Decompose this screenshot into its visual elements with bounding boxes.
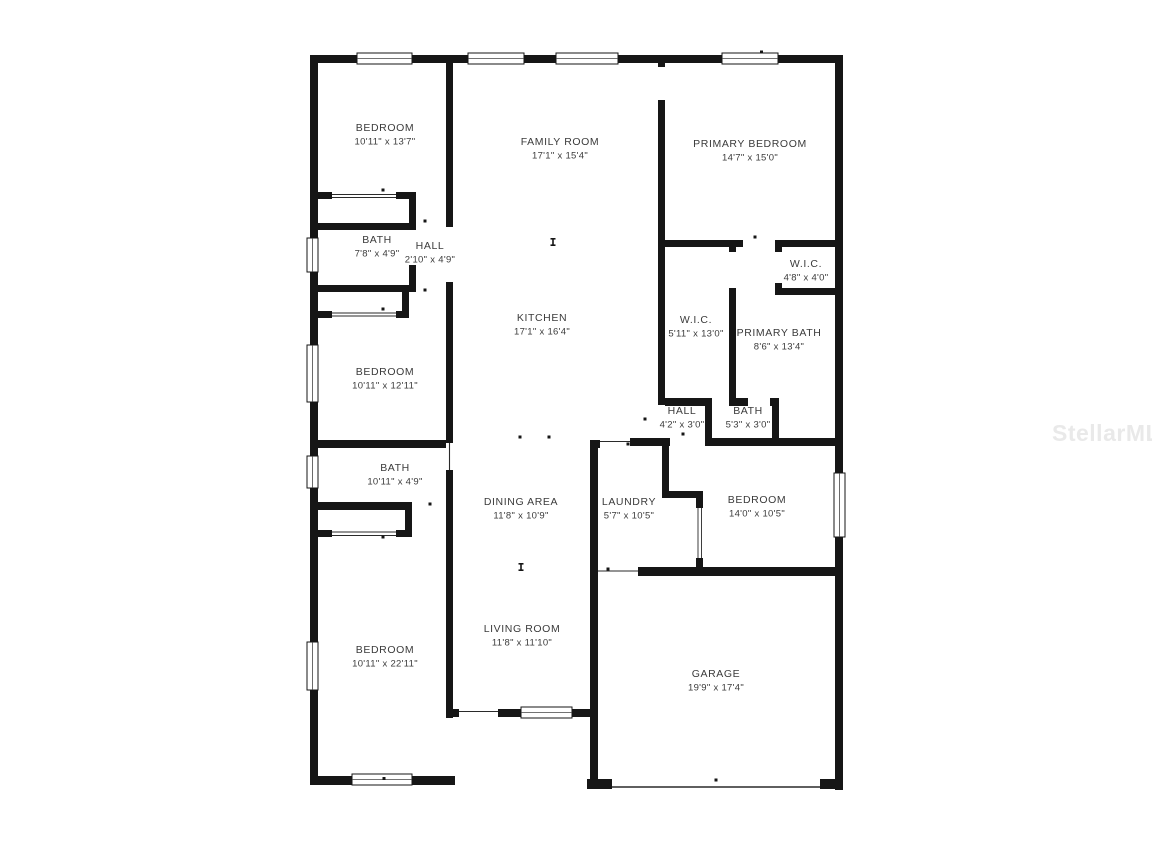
room-name: BEDROOM: [356, 122, 414, 134]
room-label-bedroom-right: BEDROOM 14'0" x 10'5": [728, 494, 786, 520]
room-dims: 7'8" x 4'9": [355, 249, 400, 260]
door-lines: [450, 442, 639, 712]
room-label-wic-small: W.I.C. 4'8" x 4'0": [784, 258, 829, 284]
room-dims: 14'7" x 15'0": [722, 153, 778, 164]
room-name: DINING AREA: [484, 496, 558, 508]
room-dims: 8'6" x 13'4": [754, 342, 804, 353]
room-dims: 11'8" x 11'10": [492, 638, 552, 649]
room-dims: 14'0" x 10'5": [729, 509, 785, 520]
room-name: BEDROOM: [356, 366, 414, 378]
room-dims: 5'7" x 10'5": [604, 511, 654, 522]
room-label-bath-2: BATH 10'11" x 4'9": [367, 462, 422, 488]
room-label-living-room: LIVING ROOM 11'8" x 11'10": [484, 623, 561, 649]
room-label-dining-area: DINING AREA 11'8" x 10'9": [484, 496, 558, 522]
room-name: PRIMARY BATH: [737, 327, 822, 339]
room-name: GARAGE: [692, 668, 741, 680]
room-dims: 11'8" x 10'9": [493, 511, 548, 522]
room-label-bath-3: BATH 5'3" x 3'0": [726, 405, 771, 431]
room-dims: 19'9" x 17'4": [688, 683, 744, 694]
room-label-primary-bedroom: PRIMARY BEDROOM 14'7" x 15'0": [693, 138, 807, 164]
room-name: KITCHEN: [517, 312, 567, 324]
room-name: W.I.C.: [680, 314, 712, 326]
room-name: HALL: [416, 240, 445, 252]
floor-plan: BEDROOM 10'11" x 13'7" FAMILY ROOM 17'1"…: [0, 0, 1152, 864]
room-name: BATH: [733, 405, 763, 417]
room-name: LAUNDRY: [602, 496, 656, 508]
room-dims: 10'11" x 13'7": [355, 137, 416, 148]
room-name: BEDROOM: [356, 644, 414, 656]
room-name: FAMILY ROOM: [521, 136, 600, 148]
room-name: BATH: [362, 234, 392, 246]
room-label-bedroom-top-left: BEDROOM 10'11" x 13'7": [355, 122, 416, 148]
room-dims: 5'3" x 3'0": [726, 420, 771, 431]
floorplan-canvas: BEDROOM 10'11" x 13'7" FAMILY ROOM 17'1"…: [0, 0, 1152, 864]
room-dims: 2'10" x 4'9": [405, 255, 455, 266]
room-dims: 17'1" x 15'4": [532, 151, 588, 162]
room-label-hall-1: HALL 2'10" x 4'9": [405, 240, 455, 266]
room-dims: 4'2" x 3'0": [660, 420, 705, 431]
room-label-wic-large: W.I.C. 5'11" x 13'0": [668, 314, 723, 340]
room-dims: 10'11" x 4'9": [367, 477, 422, 488]
room-name: BEDROOM: [728, 494, 786, 506]
room-dims: 10'11" x 22'11": [352, 659, 418, 670]
room-name: W.I.C.: [790, 258, 822, 270]
room-label-hall-2: HALL 4'2" x 3'0": [660, 405, 705, 431]
room-name: BATH: [380, 462, 410, 474]
room-name: HALL: [668, 405, 697, 417]
room-dims: 17'1" x 16'4": [514, 327, 570, 338]
room-name: LIVING ROOM: [484, 623, 561, 635]
room-dims: 5'11" x 13'0": [668, 329, 723, 340]
room-name: PRIMARY BEDROOM: [693, 138, 807, 150]
room-label-garage: GARAGE 19'9" x 17'4": [688, 668, 744, 694]
room-label-primary-bath: PRIMARY BATH 8'6" x 13'4": [737, 327, 822, 353]
room-label-bath-1: BATH 7'8" x 4'9": [355, 234, 400, 260]
room-label-bedroom-mid-left: BEDROOM 10'11" x 12'11": [352, 366, 418, 392]
room-dims: 4'8" x 4'0": [784, 273, 829, 284]
room-label-laundry: LAUNDRY 5'7" x 10'5": [602, 496, 656, 522]
room-dims: 10'11" x 12'11": [352, 381, 418, 392]
room-label-bedroom-bottom-left: BEDROOM 10'11" x 22'11": [352, 644, 418, 670]
room-label-family-room: FAMILY ROOM 17'1" x 15'4": [521, 136, 600, 162]
room-label-kitchen: KITCHEN 17'1" x 16'4": [514, 312, 570, 338]
watermark-stellarmls: StellarMLS: [1052, 420, 1152, 447]
